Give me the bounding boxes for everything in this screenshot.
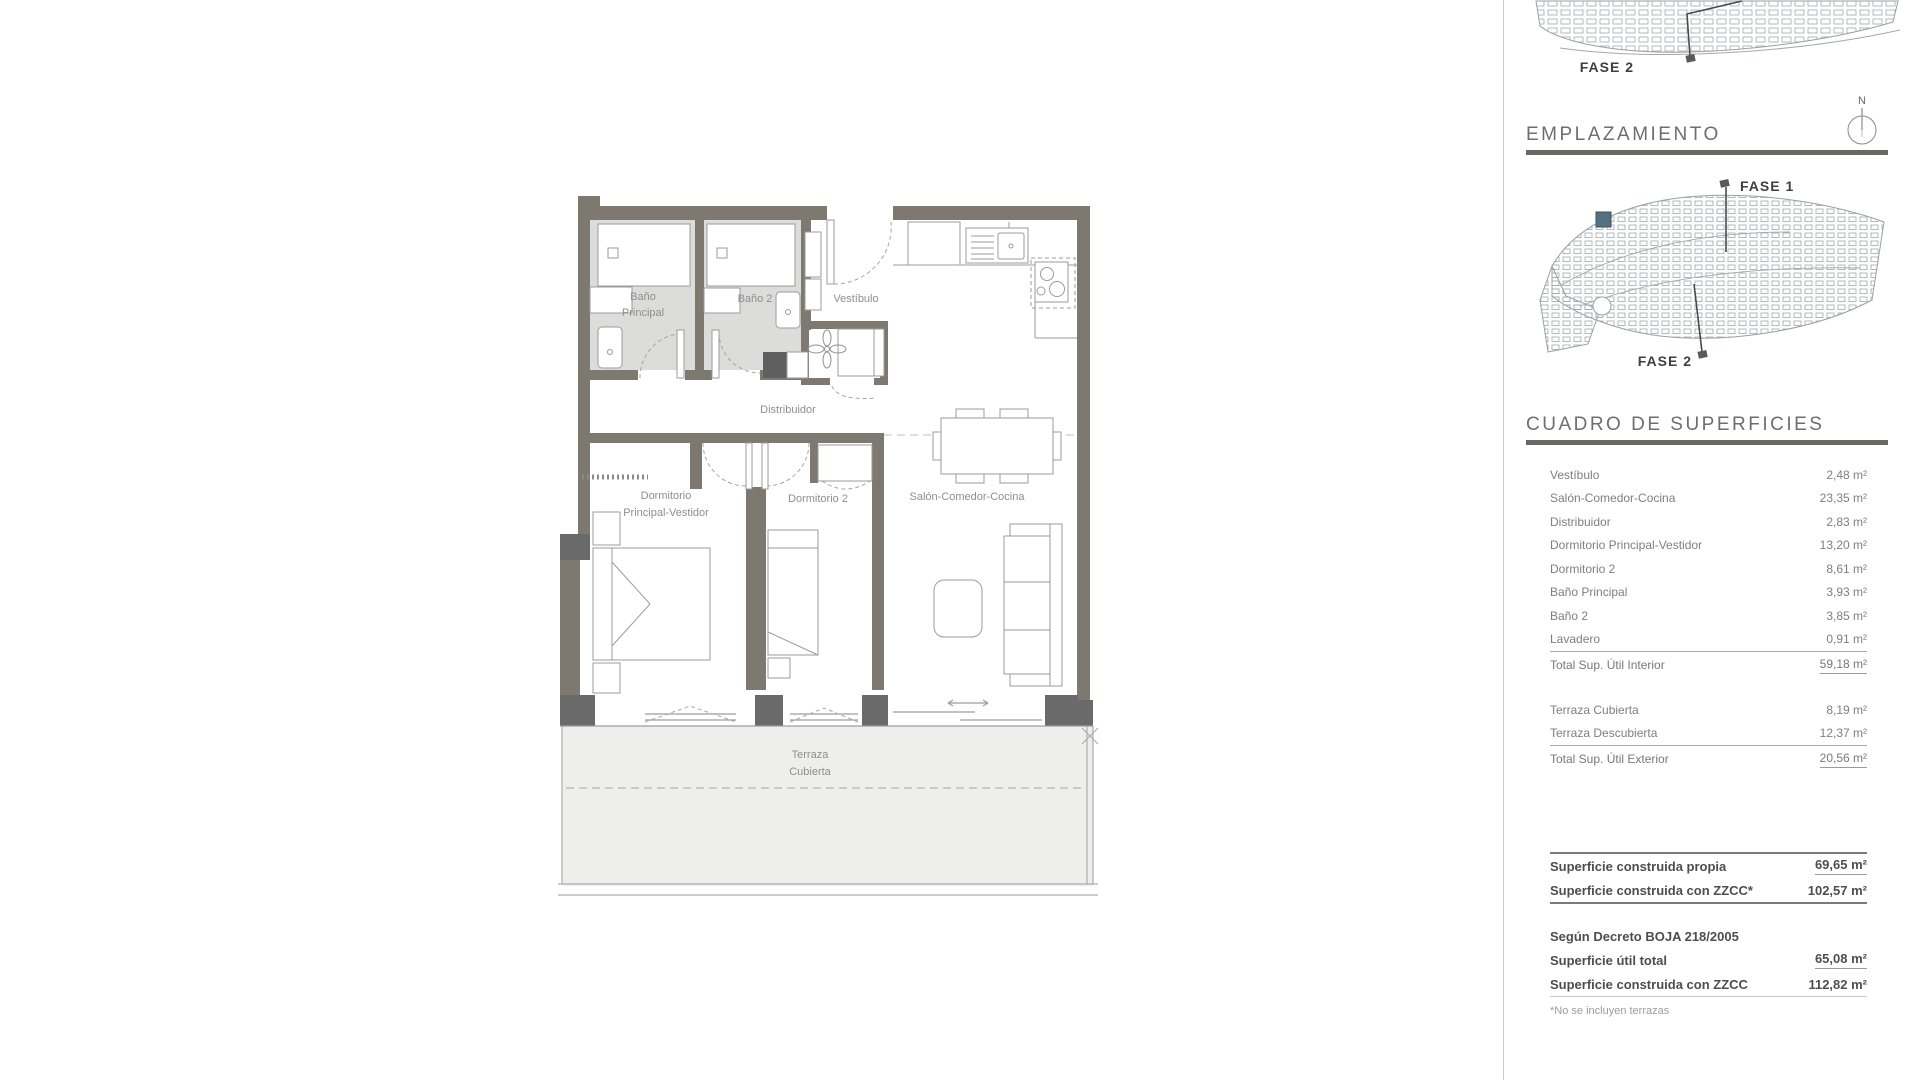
built-surface-row: Superficie construida con ZZCC* 102,57 m… — [1550, 878, 1867, 902]
armchair — [934, 580, 982, 637]
surface-label: Terraza Cubierta — [1550, 703, 1639, 717]
surface-label: Superficie construida con ZZCC — [1550, 977, 1748, 992]
label-dorm-principal-1: Dormitorio — [641, 490, 692, 502]
decree-heading: Según Decreto BOJA 218/2005 — [1550, 924, 1867, 948]
label-salon: Salón-Comedor-Cocina — [910, 491, 1026, 503]
surface-value: 2,83 m² — [1826, 515, 1867, 529]
roundabout — [1593, 297, 1611, 315]
surface-label: Total Sup. Útil Interior — [1550, 658, 1665, 672]
surface-row: Vestíbulo 2,48 m² — [1550, 463, 1867, 487]
surface-row: Dormitorio 2 8,61 m² — [1550, 557, 1867, 581]
dining-table — [933, 409, 1061, 483]
label-terraza-1: Terraza — [792, 749, 830, 761]
surface-row: Baño 2 3,85 m² — [1550, 604, 1867, 628]
surface-value: 112,82 m² — [1808, 977, 1867, 992]
interior-total-row: Total Sup. Útil Interior 59,18 m² — [1550, 652, 1867, 678]
label-vestibulo: Vestíbulo — [833, 293, 878, 305]
label-bano-principal-1: Baño — [630, 291, 656, 303]
decree-heading-label: Según Decreto BOJA 218/2005 — [1550, 929, 1739, 944]
surface-row: Terraza Cubierta 8,19 m² — [1550, 698, 1867, 722]
surface-value: 13,20 m² — [1820, 538, 1867, 552]
surface-row: Baño Principal 3,93 m² — [1550, 581, 1867, 605]
label-bano-principal-2: Principal — [622, 307, 664, 319]
surface-label: Superficie construida con ZZCC* — [1550, 883, 1753, 898]
surface-value: 8,61 m² — [1826, 562, 1867, 576]
surface-value: 59,18 m² — [1820, 657, 1867, 674]
highlighted-unit — [1596, 212, 1611, 227]
emplazamiento-section: EMPLAZAMIENTO — [1526, 124, 1888, 155]
surfaces-table: Vestíbulo 2,48 m² Salón-Comedor-Cocina 2… — [1526, 463, 1888, 1017]
surface-value: 3,93 m² — [1826, 585, 1867, 599]
bed-principal — [593, 512, 710, 693]
label-dorm-principal-2: Principal-Vestidor — [623, 507, 709, 519]
surface-value: 3,85 m² — [1826, 609, 1867, 623]
surface-value: 102,57 m² — [1808, 883, 1867, 898]
overview-site-map: FASE 2 — [1528, 0, 1905, 82]
surface-row: Salón-Comedor-Cocina 23,35 m² — [1550, 487, 1867, 511]
surface-value: 23,35 m² — [1820, 491, 1867, 505]
site-plan-drawing — [1536, 1, 1898, 52]
surface-value: 20,56 m² — [1820, 751, 1867, 768]
sofa — [1004, 524, 1062, 686]
fase1-marker — [1719, 179, 1729, 188]
surface-label: Baño 2 — [1550, 609, 1588, 623]
label-bano-2: Baño 2 — [738, 293, 773, 305]
surface-label: Baño Principal — [1550, 585, 1627, 599]
surface-label: Lavadero — [1550, 632, 1600, 646]
surface-value: 2,48 m² — [1826, 468, 1867, 482]
wardrobe — [818, 445, 872, 481]
terrace-windows — [560, 700, 1093, 726]
fase2-label: FASE 2 — [1638, 353, 1692, 369]
emplazamiento-map: FASE 1 FASE 2 — [1532, 166, 1894, 374]
floor-plan: Baño Principal Baño 2 Vestíbulo Distribu… — [540, 190, 1120, 900]
label-terraza-2: Cubierta — [789, 766, 831, 778]
decree-row: Superficie construida con ZZCC 112,82 m² — [1550, 972, 1867, 996]
vertical-divider — [1503, 0, 1504, 1080]
bed-2 — [768, 530, 818, 678]
built-surface-row: Superficie construida propia 69,65 m² — [1550, 854, 1867, 878]
entry-door-leaf — [827, 220, 834, 284]
fase1-label: FASE 1 — [1740, 178, 1794, 194]
surface-label: Dormitorio 2 — [1550, 562, 1615, 576]
surface-row: Distribuidor 2,83 m² — [1550, 510, 1867, 534]
surface-row: Lavadero 0,91 m² — [1550, 628, 1867, 652]
overview-fase2-label: FASE 2 — [1580, 59, 1634, 75]
shaft-cabinet — [787, 352, 808, 378]
compass-n-label: N — [1858, 95, 1866, 107]
heading-underline-bar — [1526, 440, 1888, 445]
kitchen — [893, 222, 1077, 338]
footnote: *No se incluyen terrazas — [1550, 1005, 1867, 1017]
exterior-total-row: Total Sup. Útil Exterior 20,56 m² — [1550, 746, 1867, 772]
surface-label: Superficie construida propia — [1550, 859, 1726, 874]
fase2-marker — [1685, 54, 1695, 63]
label-distribuidor: Distribuidor — [760, 404, 816, 416]
surface-value: 8,19 m² — [1826, 703, 1867, 717]
surface-value: 0,91 m² — [1826, 632, 1867, 646]
label-dormitorio-2: Dormitorio 2 — [788, 493, 848, 505]
surface-label: Dormitorio Principal-Vestidor — [1550, 538, 1702, 552]
bedroom-door-leaves — [746, 443, 768, 489]
surface-value: 12,37 m² — [1820, 726, 1867, 740]
heading-underline-bar — [1526, 150, 1888, 155]
surface-value: 65,08 m² — [1815, 951, 1867, 969]
surface-label: Vestíbulo — [1550, 468, 1599, 482]
surfaces-title: CUADRO DE SUPERFICIES — [1526, 414, 1888, 436]
surface-label: Salón-Comedor-Cocina — [1550, 491, 1675, 505]
surface-label: Total Sup. Útil Exterior — [1550, 752, 1669, 766]
surface-row: Terraza Descubierta 12,37 m² — [1550, 722, 1867, 746]
surfaces-section: CUADRO DE SUPERFICIES Vestíbulo 2,48 m² … — [1526, 414, 1888, 1017]
surface-label: Superficie útil total — [1550, 953, 1667, 968]
surface-label: Distribuidor — [1550, 515, 1611, 529]
fase2-marker — [1697, 350, 1707, 359]
surface-value: 69,65 m² — [1815, 857, 1867, 875]
surface-row: Dormitorio Principal-Vestidor 13,20 m² — [1550, 534, 1867, 558]
emplazamiento-title: EMPLAZAMIENTO — [1526, 124, 1888, 146]
surface-label: Terraza Descubierta — [1550, 726, 1657, 740]
decree-row: Superficie útil total 65,08 m² — [1550, 948, 1867, 972]
table-rule-light — [1550, 996, 1867, 997]
page: Baño Principal Baño 2 Vestíbulo Distribu… — [0, 0, 1920, 1080]
